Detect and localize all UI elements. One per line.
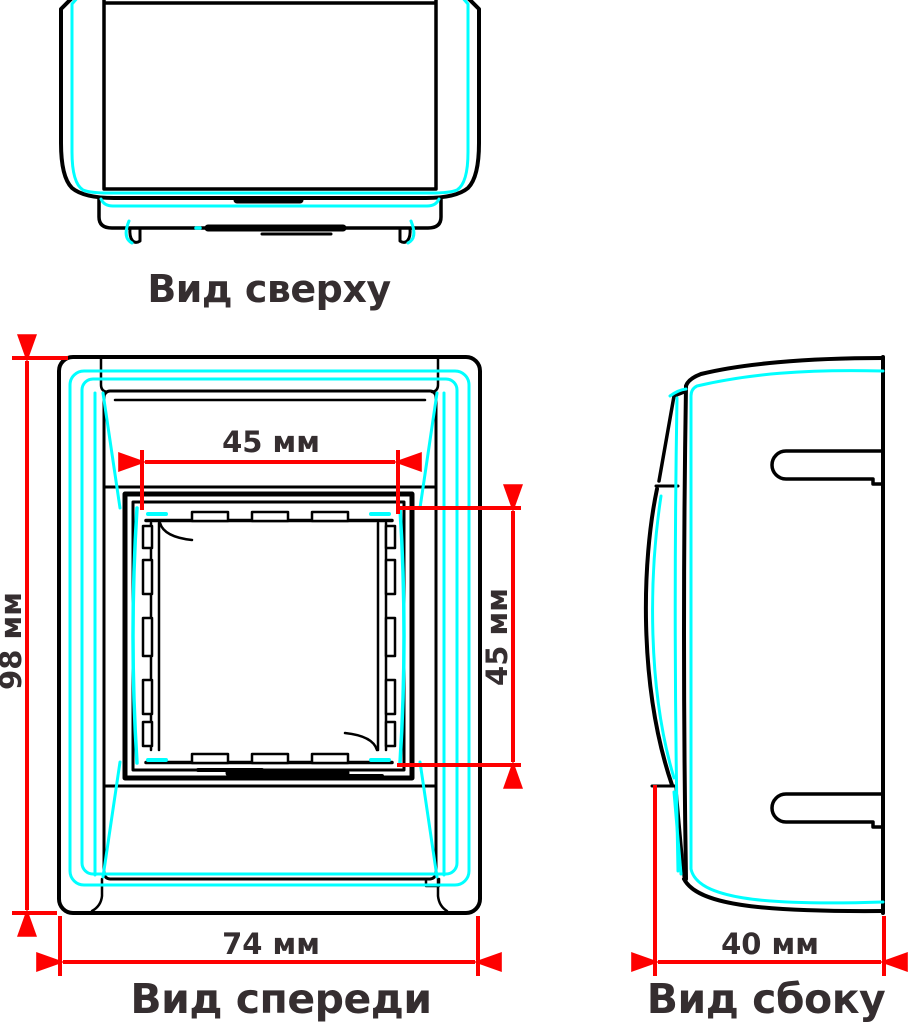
- dimension-label-depth: 40 мм: [721, 927, 819, 961]
- module-notch: [143, 560, 152, 594]
- side-body-line: [684, 386, 686, 879]
- front-view-title: Вид спереди: [130, 975, 431, 1023]
- module-tab: [252, 512, 288, 521]
- top-view-foot-right: [400, 228, 410, 242]
- top-view-title: Вид сверху: [147, 267, 391, 311]
- top-view-highlights: [72, 0, 468, 243]
- module-opening-inner: [133, 502, 404, 770]
- dimension-label-opening-width: 45 мм: [222, 425, 320, 459]
- module-notch: [386, 680, 395, 714]
- top-view-foot-left: [130, 228, 140, 242]
- side-bottom-edge: [684, 879, 883, 911]
- side-cyan-bulge: [653, 496, 674, 778]
- top-view-inner-face: [104, 0, 436, 189]
- dimension-label-opening-height: 45 мм: [480, 588, 514, 686]
- dimension-45mm-horizontal: [142, 450, 398, 514]
- module-cyan-segments: [148, 514, 389, 760]
- module-corner-arc-bottomright: [345, 733, 377, 750]
- module-tab: [192, 754, 228, 763]
- module-corner-arc-topleft: [160, 523, 192, 540]
- module-tab: [192, 512, 228, 521]
- module-notch: [143, 680, 152, 714]
- top-view-outer-body: [61, 0, 479, 198]
- top-view-cyan-contour: [72, 0, 468, 193]
- technical-drawing-page: Вид сверху Вид спереди Вид сбоку 45 мм 9…: [0, 0, 909, 1024]
- three-view-drawing: Вид сверху Вид спереди Вид сбоку 45 мм 9…: [0, 0, 909, 1024]
- module-notch: [386, 526, 395, 548]
- side-face-bulge: [646, 489, 672, 785]
- module-notch: [386, 560, 395, 594]
- module-tab: [312, 512, 348, 521]
- module-tab: [252, 754, 288, 763]
- module-cyan-arcs: [133, 508, 404, 763]
- module-notch: [386, 722, 395, 746]
- dimension-extension-ticks: [142, 450, 398, 514]
- dimension-label-width: 74 мм: [222, 927, 320, 961]
- dimension-label-height: 98 мм: [0, 592, 28, 690]
- side-view-outline: [646, 357, 883, 913]
- module-side-strips: [151, 523, 386, 750]
- side-slot-upper: [772, 451, 883, 484]
- module-notch: [143, 722, 152, 746]
- module-opening-outer: [125, 494, 412, 778]
- side-top-slope: [659, 392, 684, 481]
- module-notch: [386, 618, 395, 656]
- side-view-title: Вид сбоку: [647, 975, 886, 1023]
- side-slot-lower: [772, 794, 883, 827]
- module-notch: [143, 618, 152, 656]
- module-tab: [312, 754, 348, 763]
- module-notch: [143, 526, 152, 548]
